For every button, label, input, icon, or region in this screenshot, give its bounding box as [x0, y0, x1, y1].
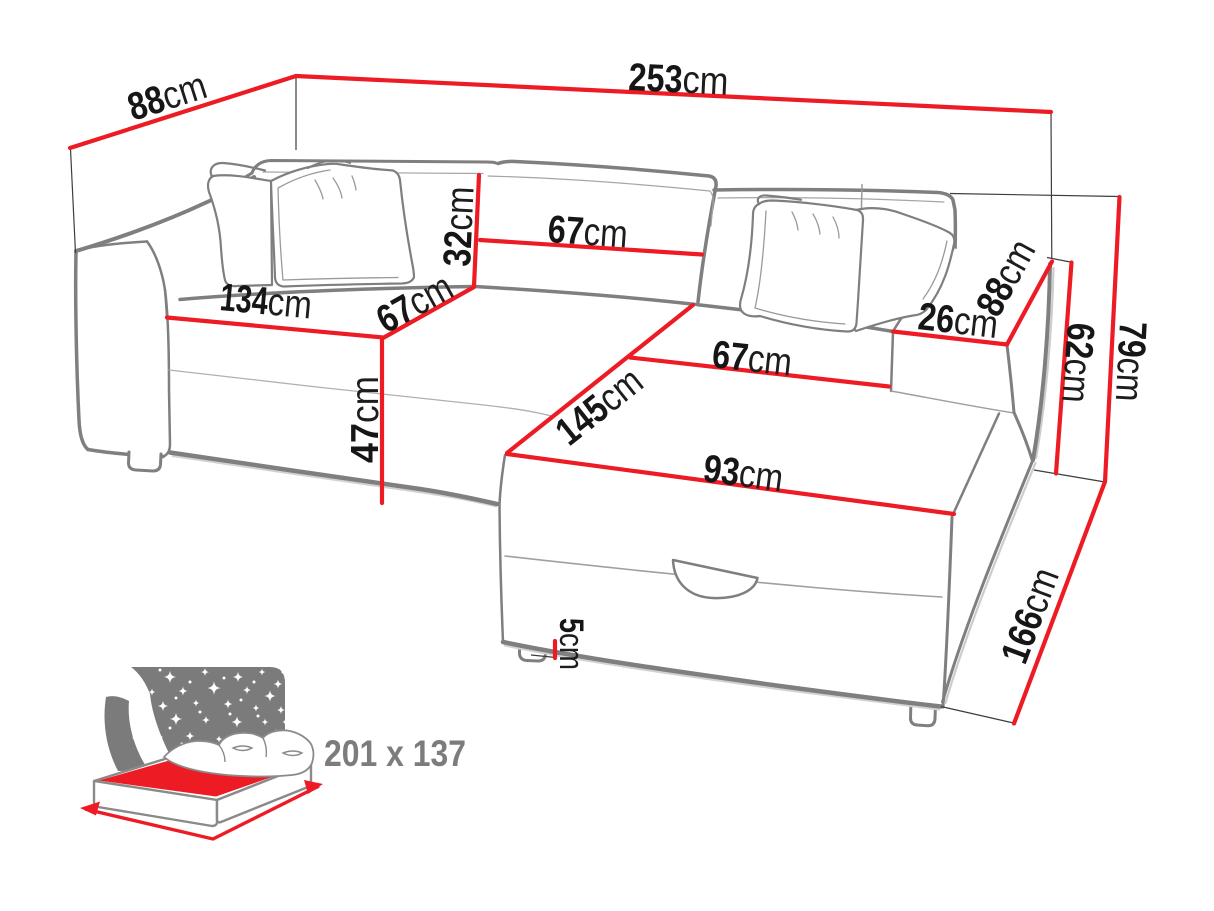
svg-text:62cm: 62cm: [1053, 321, 1102, 404]
svg-text:47cm: 47cm: [344, 376, 387, 463]
svg-text:79cm: 79cm: [1107, 321, 1154, 403]
svg-text:201 x 137: 201 x 137: [324, 733, 466, 774]
svg-text:5cm: 5cm: [552, 618, 590, 670]
svg-text:67cm: 67cm: [546, 208, 629, 256]
svg-text:32cm: 32cm: [436, 186, 483, 268]
svg-text:88cm: 88cm: [123, 64, 212, 129]
svg-text:67cm: 67cm: [710, 333, 794, 385]
svg-text:134cm: 134cm: [218, 276, 314, 327]
svg-text:253cm: 253cm: [628, 56, 730, 104]
